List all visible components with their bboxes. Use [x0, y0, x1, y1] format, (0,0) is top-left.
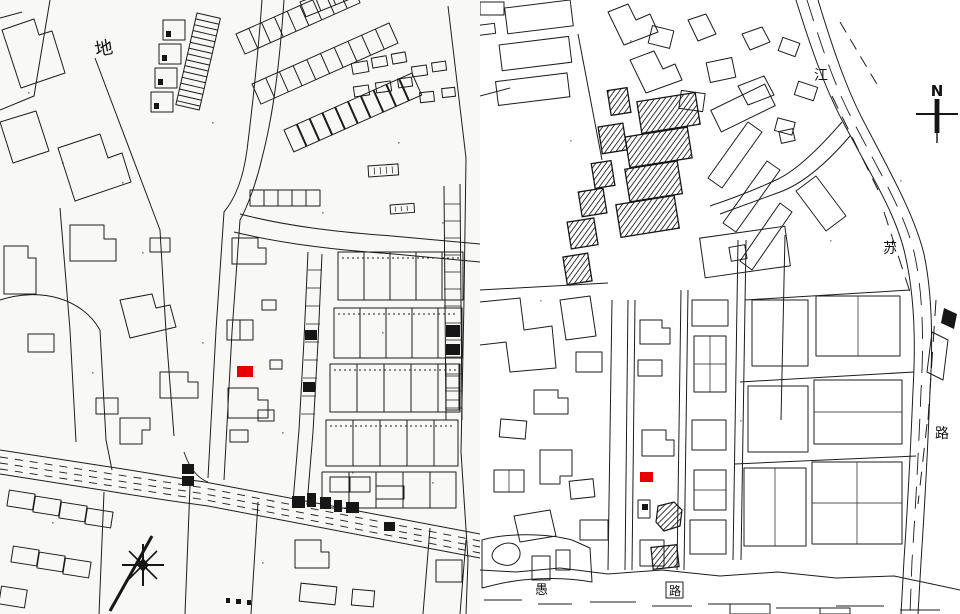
jiangsu-road-label-su: 苏 — [883, 241, 897, 257]
jiangsu-road-label-lu: 路 — [935, 426, 949, 442]
survey-map-panel: 江 苏 路 N — [480, 0, 960, 614]
jiangsu-road-label-jiang: 江 — [814, 68, 828, 84]
north-label: N — [931, 82, 944, 100]
right-map-paper — [480, 0, 960, 614]
left-map-paper — [0, 0, 480, 614]
left-map-site-marker — [237, 366, 253, 377]
left-map-label-di: 地 — [93, 37, 114, 61]
yuyuan-road-label-yu: 愚 — [535, 583, 548, 598]
historical-map-panel: 地 — [0, 0, 480, 614]
yuyuan-road-label-lu: 路 — [669, 583, 681, 598]
map-comparison-view: 地 — [0, 0, 960, 614]
right-map-site-marker — [640, 472, 653, 482]
